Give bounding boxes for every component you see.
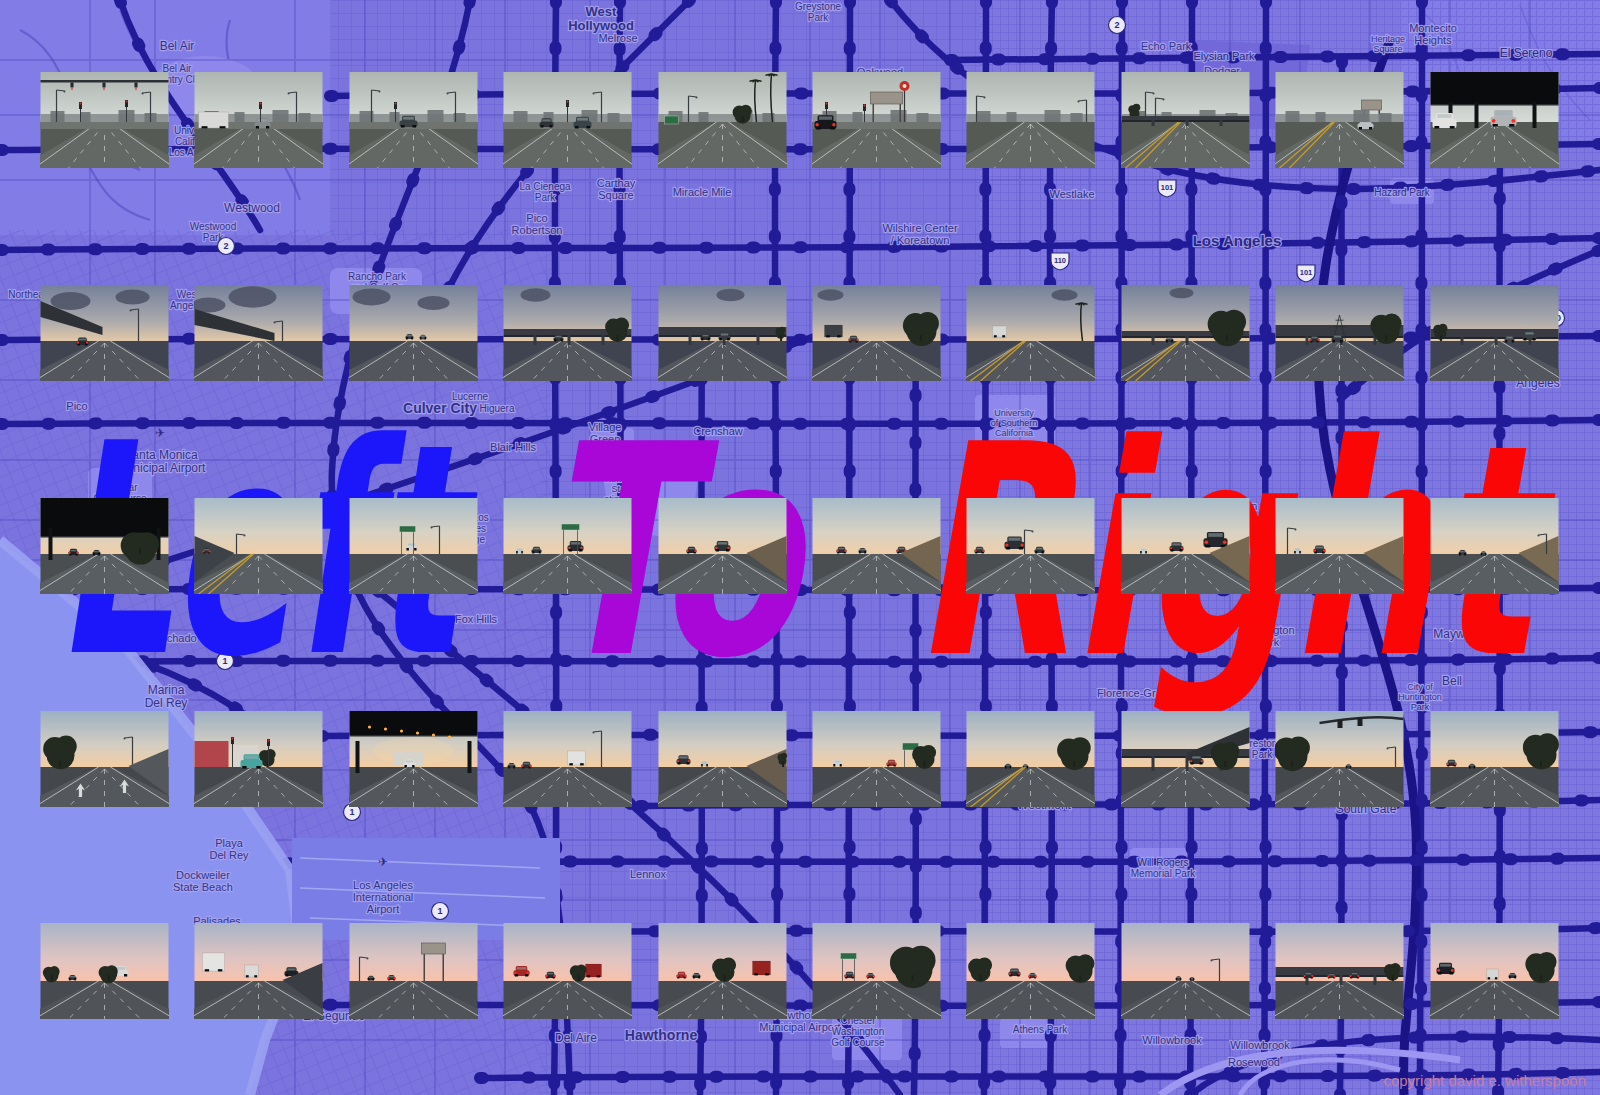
poster-collage: GreystoneParkWestHollywoodMelroseBel Air… (0, 0, 1600, 1095)
copyright-layer: copyright david e. witherspoon (0, 0, 1600, 1095)
copyright-text: copyright david e. witherspoon (1383, 1072, 1586, 1089)
